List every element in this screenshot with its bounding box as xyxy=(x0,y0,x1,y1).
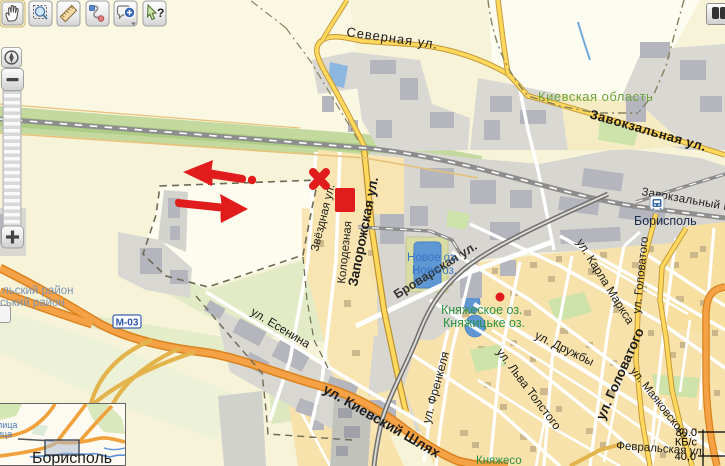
svg-text:Новое оз.: Новое оз. xyxy=(407,252,458,264)
svg-text:Княжесо: Княжесо xyxy=(476,455,522,466)
svg-text:ица: ица xyxy=(0,429,12,439)
svg-text:Нове оз.: Нове оз. xyxy=(412,265,457,277)
svg-text:Княжицьке оз.: Княжицьке оз. xyxy=(443,316,525,330)
svg-text:Княжеское оз.: Княжеское оз. xyxy=(441,303,523,317)
svg-text:М-03: М-03 xyxy=(116,318,139,329)
svg-text:Борисполь: Борисполь xyxy=(634,214,697,228)
svg-text:КБ/с: КБ/с xyxy=(675,437,698,449)
svg-text:льский район: льский район xyxy=(2,285,74,297)
svg-text:Киевская область: Киевская область xyxy=(538,89,653,104)
svg-text:40,0: 40,0 xyxy=(675,451,696,463)
svg-text:Борисполь: Борисполь xyxy=(32,450,112,466)
svg-text:?: ? xyxy=(157,6,164,20)
